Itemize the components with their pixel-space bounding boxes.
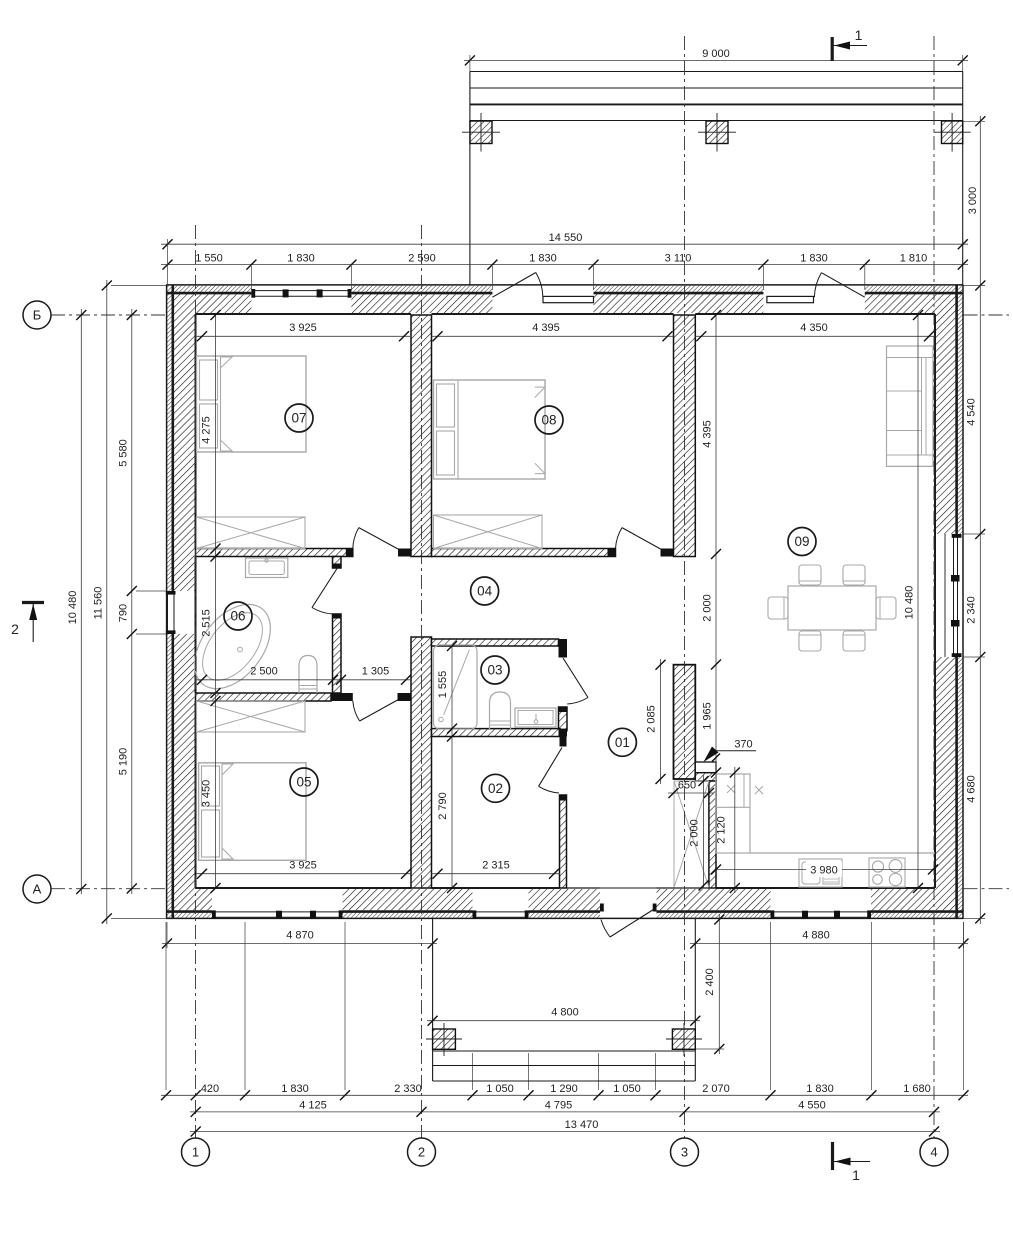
svg-text:2 590: 2 590 <box>408 252 436 264</box>
svg-text:1 555: 1 555 <box>437 671 449 699</box>
svg-text:2 120: 2 120 <box>716 816 728 844</box>
svg-text:3 925: 3 925 <box>289 322 317 334</box>
svg-text:3 000: 3 000 <box>967 187 979 215</box>
svg-text:10 480: 10 480 <box>67 591 79 625</box>
svg-text:03: 03 <box>487 663 502 678</box>
svg-text:2 085: 2 085 <box>646 705 658 733</box>
svg-text:1 965: 1 965 <box>702 702 714 730</box>
svg-text:Б: Б <box>33 308 42 323</box>
svg-text:4 880: 4 880 <box>802 930 830 942</box>
svg-text:4 680: 4 680 <box>966 775 978 803</box>
svg-text:1: 1 <box>852 1167 860 1183</box>
svg-text:4 800: 4 800 <box>551 1007 579 1019</box>
svg-text:4 395: 4 395 <box>532 322 560 334</box>
svg-text:1 305: 1 305 <box>362 666 390 678</box>
svg-text:1 810: 1 810 <box>900 252 928 264</box>
svg-text:9 000: 9 000 <box>702 48 730 60</box>
svg-text:08: 08 <box>541 413 556 428</box>
svg-text:2: 2 <box>11 621 19 637</box>
svg-text:04: 04 <box>477 584 493 599</box>
svg-text:1 680: 1 680 <box>903 1083 931 1095</box>
svg-text:1 830: 1 830 <box>806 1083 834 1095</box>
svg-text:1 830: 1 830 <box>287 252 315 264</box>
svg-text:650: 650 <box>678 780 696 792</box>
svg-text:1 830: 1 830 <box>281 1083 309 1095</box>
svg-text:1 830: 1 830 <box>800 252 828 264</box>
svg-text:4 870: 4 870 <box>286 930 314 942</box>
svg-text:1 550: 1 550 <box>195 252 223 264</box>
svg-text:5 580: 5 580 <box>118 439 130 467</box>
svg-text:2 790: 2 790 <box>437 792 449 820</box>
svg-text:А: А <box>33 882 42 897</box>
svg-text:1 830: 1 830 <box>529 252 557 264</box>
svg-text:07: 07 <box>291 411 306 426</box>
svg-text:2 000: 2 000 <box>702 594 714 622</box>
svg-text:4 795: 4 795 <box>545 1100 573 1112</box>
svg-text:2 315: 2 315 <box>482 859 510 871</box>
svg-text:4 350: 4 350 <box>800 322 828 334</box>
svg-text:1: 1 <box>192 1145 199 1160</box>
svg-text:2 400: 2 400 <box>704 968 716 996</box>
svg-text:4: 4 <box>930 1145 937 1160</box>
svg-text:1 050: 1 050 <box>613 1083 641 1095</box>
svg-text:3 980: 3 980 <box>810 865 838 877</box>
svg-text:420: 420 <box>201 1083 219 1095</box>
svg-text:4 395: 4 395 <box>702 420 714 448</box>
svg-text:4 540: 4 540 <box>966 398 978 426</box>
svg-text:2 500: 2 500 <box>250 666 278 678</box>
svg-text:3 110: 3 110 <box>665 252 692 264</box>
svg-text:02: 02 <box>488 781 503 796</box>
svg-text:4 125: 4 125 <box>299 1100 327 1112</box>
svg-text:4 550: 4 550 <box>798 1100 826 1112</box>
svg-text:05: 05 <box>296 775 311 790</box>
svg-text:14 550: 14 550 <box>549 232 583 244</box>
svg-text:11 560: 11 560 <box>93 587 105 620</box>
svg-text:1 290: 1 290 <box>550 1083 578 1095</box>
svg-text:790: 790 <box>118 604 130 622</box>
svg-text:06: 06 <box>230 609 245 624</box>
svg-text:09: 09 <box>794 534 809 549</box>
svg-text:2 340: 2 340 <box>966 596 978 624</box>
svg-text:2 515: 2 515 <box>201 609 213 637</box>
svg-text:2 330: 2 330 <box>394 1083 422 1095</box>
svg-text:4 275: 4 275 <box>201 416 213 444</box>
svg-text:1: 1 <box>855 27 863 43</box>
svg-text:2 070: 2 070 <box>702 1083 730 1095</box>
svg-text:370: 370 <box>734 738 752 750</box>
svg-text:2 000: 2 000 <box>689 819 701 847</box>
svg-text:5 190: 5 190 <box>118 748 130 776</box>
svg-text:10 480: 10 480 <box>904 586 916 620</box>
svg-text:13 470: 13 470 <box>565 1119 599 1131</box>
svg-text:3 450: 3 450 <box>201 780 213 808</box>
svg-text:01: 01 <box>615 735 630 750</box>
svg-text:3 925: 3 925 <box>289 859 317 871</box>
svg-text:1 050: 1 050 <box>486 1083 514 1095</box>
svg-text:2: 2 <box>418 1145 425 1160</box>
svg-text:3: 3 <box>681 1145 688 1160</box>
